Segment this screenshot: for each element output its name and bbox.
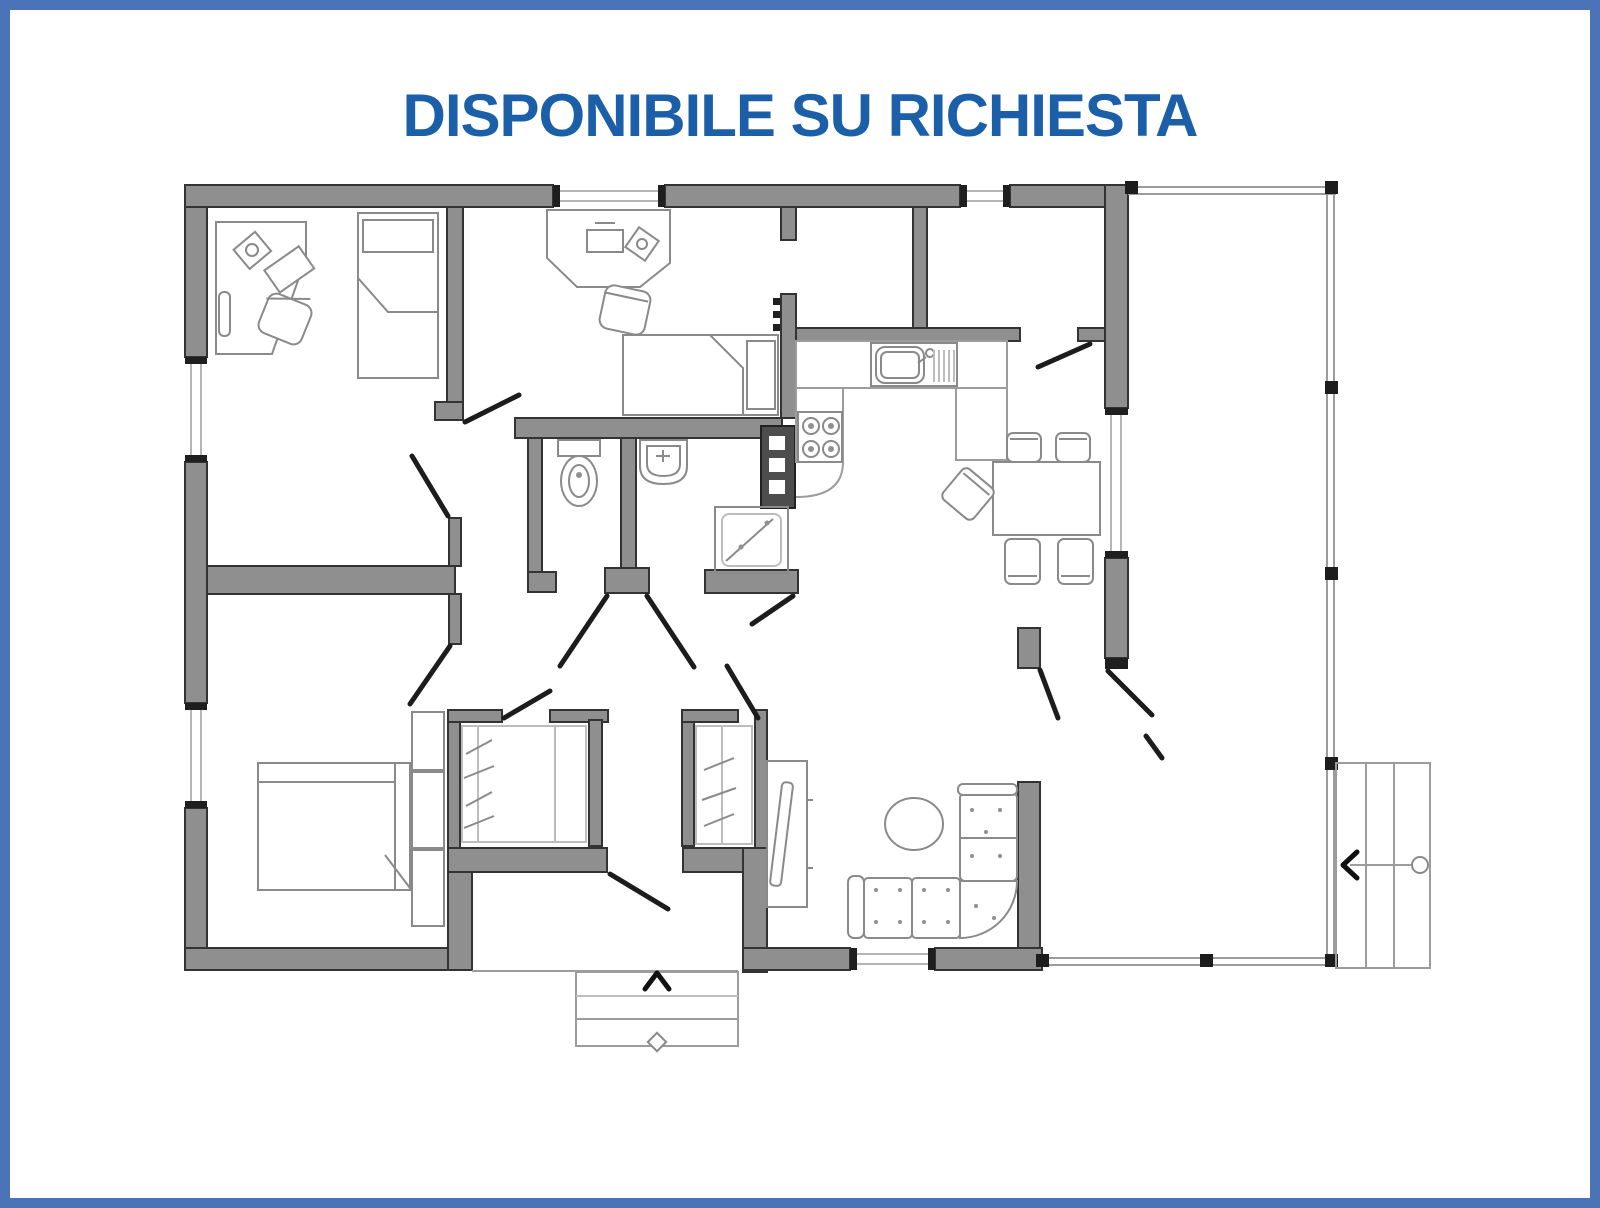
window-left-1: [185, 357, 207, 462]
bathroom-fixtures: [558, 440, 788, 573]
coffee-table-icon: [885, 798, 943, 850]
door-terrace-leaf1: [1040, 670, 1058, 718]
window-top-1: [553, 185, 665, 207]
terrace-steps: [1336, 763, 1430, 968]
office-chair-icon: [598, 284, 652, 337]
door-corridor: [752, 596, 793, 624]
interior-walls: [207, 207, 1105, 848]
dining-chair-icon: [940, 466, 996, 522]
kitchen-counter-curve: [796, 462, 843, 497]
kitchen-sink-icon: [871, 343, 957, 386]
door-terrace-leaf2: [1108, 671, 1152, 715]
entry-steps-marker-icon: [648, 1033, 666, 1051]
dining-chair-icon: [1058, 539, 1093, 584]
dining-chair-icon: [1005, 539, 1040, 584]
window-right-dining: [1105, 408, 1128, 558]
door-terrace-leaf3: [1146, 736, 1162, 758]
floor-plan: [10, 10, 1600, 1208]
hangers-icon: [702, 758, 736, 826]
window-bottom-living: [850, 948, 935, 970]
bedroom2-furniture: [547, 210, 778, 415]
bedroom1-furniture: [216, 213, 438, 378]
boiler-column: [761, 426, 795, 508]
terrace-steps-marker-icon: [1412, 857, 1428, 873]
dining-chair-icon: [1056, 433, 1090, 462]
sink-icon: [640, 440, 687, 484]
door-storage: [1038, 344, 1090, 367]
door-closet1: [504, 691, 550, 718]
window-top-2: [960, 185, 1010, 207]
door-bedroom2: [465, 395, 519, 422]
desk-icon: [547, 210, 670, 287]
single-bed-icon: [358, 213, 438, 378]
double-bed-icon: [258, 763, 410, 890]
door-entry: [610, 874, 668, 909]
entry-steps: [472, 971, 738, 1051]
bedroom3-furniture: [258, 712, 444, 926]
shower-icon: [715, 507, 788, 573]
toilet-icon: [558, 440, 600, 506]
door-bedroom1: [412, 456, 448, 516]
tv-cabinet-icon: [767, 761, 813, 907]
door-bathroom: [647, 596, 694, 667]
stove-icon: [798, 412, 842, 462]
window-left-2: [185, 703, 207, 808]
terrace: [1036, 181, 1430, 968]
entry-direction-arrow-icon: [645, 973, 669, 989]
nightstand-icon: [412, 712, 444, 926]
living-room-furniture: [767, 761, 1017, 938]
closet2-interior: [696, 726, 752, 844]
dining-chair-icon: [1007, 433, 1041, 462]
door-wc: [560, 596, 607, 666]
single-bed-icon: [623, 335, 778, 415]
closet1-interior: [462, 726, 586, 842]
poster-frame: DISPONIBILE SU RICHIESTA: [0, 0, 1600, 1208]
dining-table: [993, 462, 1100, 535]
door-bedroom3: [410, 646, 450, 704]
kitchen-counter-return: [956, 388, 1007, 460]
dining-furniture: [940, 433, 1100, 584]
